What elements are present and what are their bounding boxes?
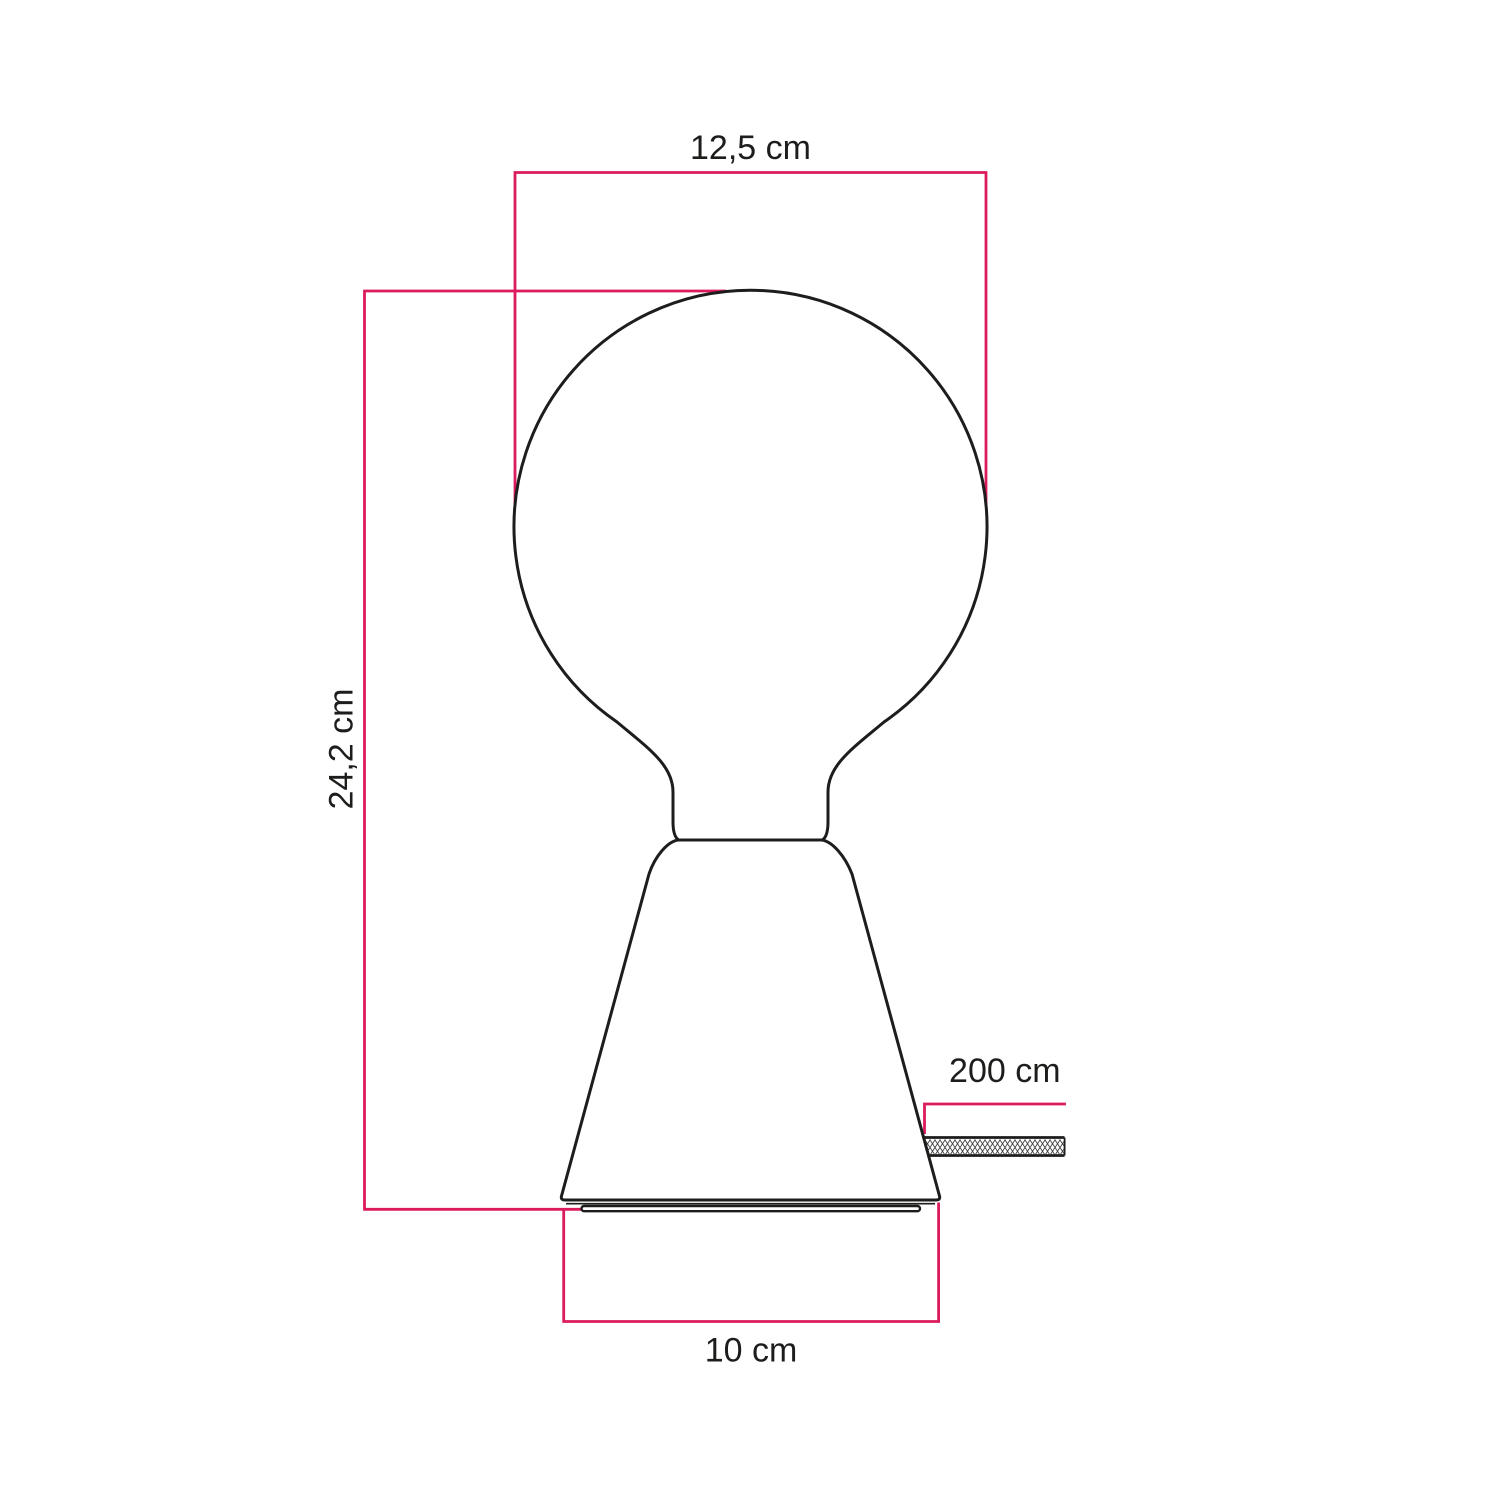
svg-text:200 cm: 200 cm [949, 1052, 1061, 1090]
svg-text:24,2 cm: 24,2 cm [323, 689, 361, 810]
svg-text:12,5 cm: 12,5 cm [690, 129, 811, 167]
svg-text:10 cm: 10 cm [705, 1332, 798, 1370]
